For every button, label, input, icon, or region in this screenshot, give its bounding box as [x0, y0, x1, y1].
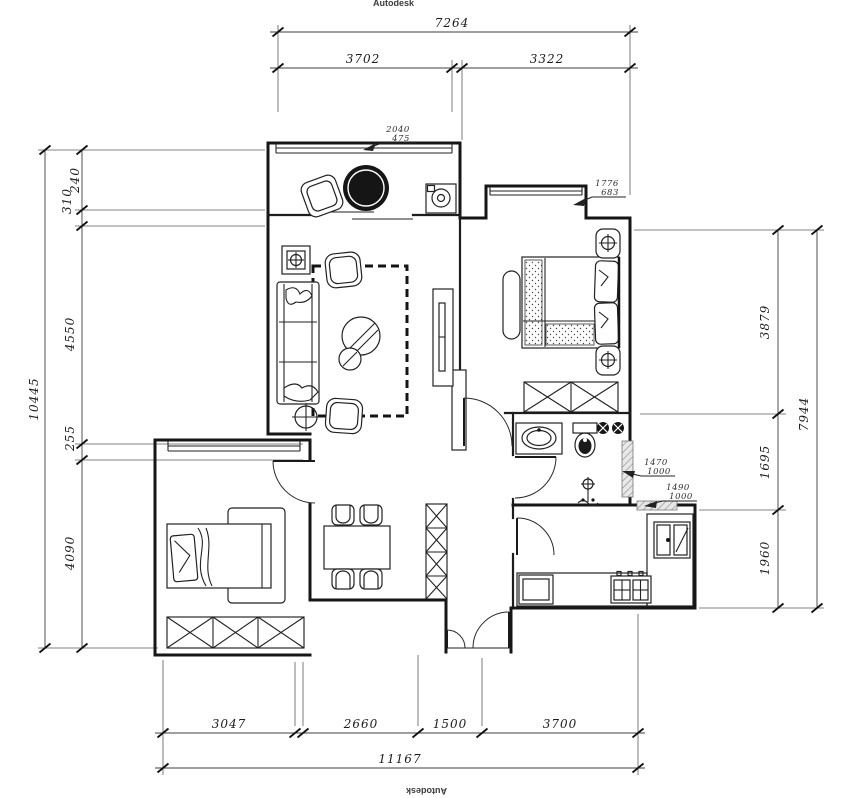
bedroom2-window	[168, 441, 300, 451]
shower-symbol	[578, 477, 598, 506]
dim-bottom-total: 11167	[378, 752, 421, 766]
dim-bottom-seg1: 3047	[212, 717, 247, 731]
stove	[611, 572, 651, 604]
window-tag-1: 2040 475	[363, 125, 416, 151]
dim-left-seg2: 240	[68, 167, 82, 194]
dining-table	[324, 526, 390, 569]
wardrobe-bedroom2	[167, 617, 304, 648]
wardrobe-bedroom1	[524, 382, 618, 412]
bedroom1-door	[464, 398, 512, 446]
dim-top-total: 7264	[435, 16, 470, 30]
entry-door	[447, 612, 509, 648]
dim-right-seg2: 1695	[758, 445, 772, 480]
bedroom-1	[503, 229, 620, 412]
armchair-pouf-bottom	[325, 398, 363, 434]
dim-right-seg3: 1960	[758, 541, 772, 576]
washing-machine	[426, 184, 456, 213]
nightstand-bottom	[596, 346, 620, 375]
bathroom	[516, 422, 624, 506]
bed2-pillow	[170, 534, 198, 582]
dim-top-seg2: 3322	[530, 52, 565, 66]
kitchen	[517, 514, 693, 606]
balcony	[299, 165, 456, 219]
kitchen-door	[517, 518, 554, 555]
bedroom2-door	[273, 461, 315, 503]
dim-left-total: 10445	[27, 377, 41, 420]
dim-right-total: 7944	[797, 397, 811, 432]
bed1-blanket2	[546, 324, 594, 345]
dining-chair	[332, 505, 354, 525]
dim-left-seg4: 255	[63, 425, 77, 452]
dim-bottom-seg2: 2660	[343, 717, 379, 731]
living-room	[277, 246, 453, 434]
tv-console	[433, 289, 453, 386]
dim-right-seg1: 3879	[758, 305, 772, 340]
autodesk-watermark-top: Autodesk	[373, 0, 415, 8]
dim-bottom-seg3: 1500	[433, 717, 468, 731]
floor-plan-canvas: 7264 3702 3322 10445 310 240 4550 255 40…	[0, 0, 868, 798]
bed1-bench	[503, 271, 520, 339]
decor-stand	[282, 246, 310, 274]
dining-chair	[360, 569, 382, 589]
dining-chair	[332, 569, 354, 589]
bedroom-2	[167, 508, 304, 648]
fridge	[519, 575, 553, 604]
floor-lamp	[292, 403, 320, 431]
dim-left-seg5: 4090	[63, 536, 77, 572]
coffee-table	[339, 317, 380, 370]
bathroom-side-window	[622, 441, 633, 497]
dim-top-seg1: 3702	[346, 52, 381, 66]
kitchen-sink	[654, 522, 690, 558]
dim-left-seg3: 4550	[63, 317, 77, 353]
dimension-chain-top: 7264 3702 3322	[270, 16, 638, 195]
dining-area	[324, 504, 447, 599]
hall-cabinet	[426, 504, 447, 599]
dim-bottom-seg4: 3700	[543, 717, 578, 731]
sofa	[277, 282, 319, 404]
nightstand-top	[596, 229, 620, 258]
valve-icons	[597, 422, 624, 434]
dining-chair	[360, 505, 382, 525]
autodesk-watermark-bottom: Autodesk	[405, 786, 447, 796]
toilet	[573, 423, 597, 457]
bed1-blanket	[525, 260, 542, 345]
bathroom-sink	[516, 423, 562, 454]
bathroom-door	[515, 457, 556, 498]
window-tag-2: 1776 683	[573, 179, 626, 206]
round-table	[343, 165, 389, 211]
armchair-pouf-top	[324, 251, 362, 288]
